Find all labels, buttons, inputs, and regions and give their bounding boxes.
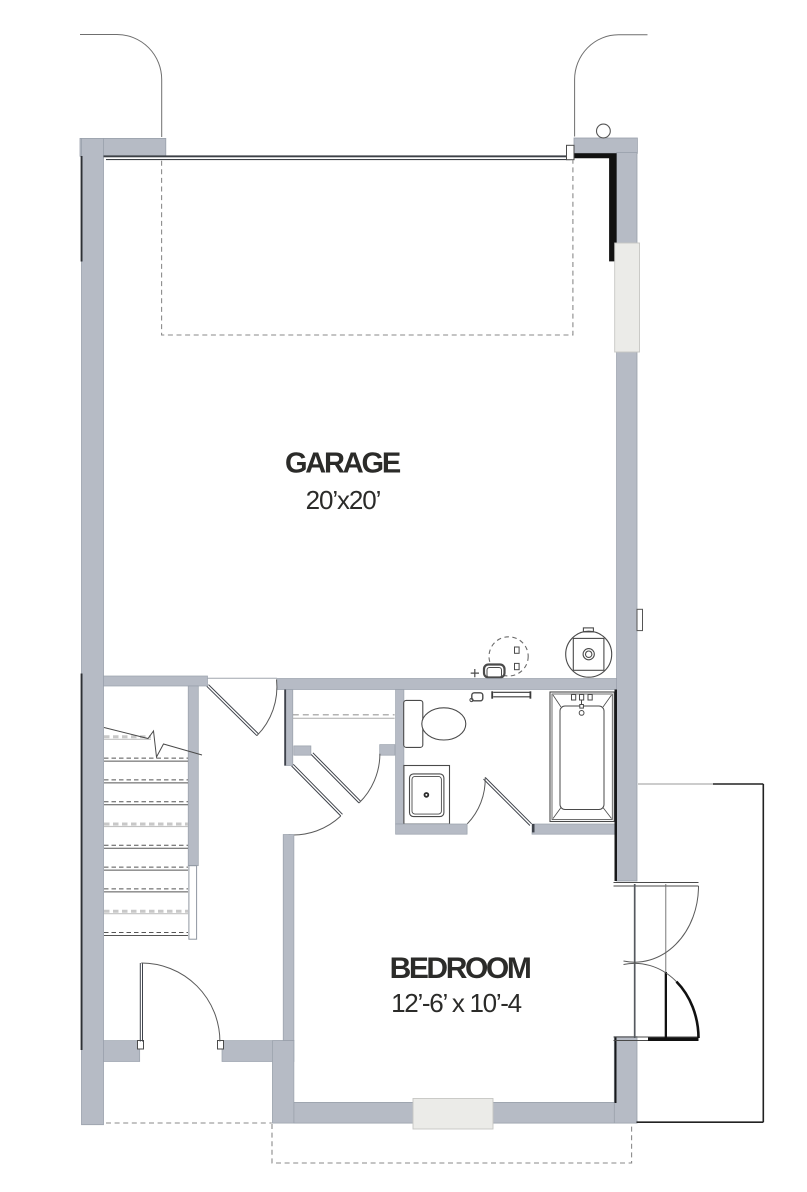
- svg-text:12’-6’ x 10’-4: 12’-6’ x 10’-4: [391, 988, 522, 1018]
- svg-text:BEDROOM: BEDROOM: [390, 952, 530, 985]
- svg-text:GARAGE: GARAGE: [285, 448, 401, 480]
- svg-text:20’x20’: 20’x20’: [306, 485, 381, 515]
